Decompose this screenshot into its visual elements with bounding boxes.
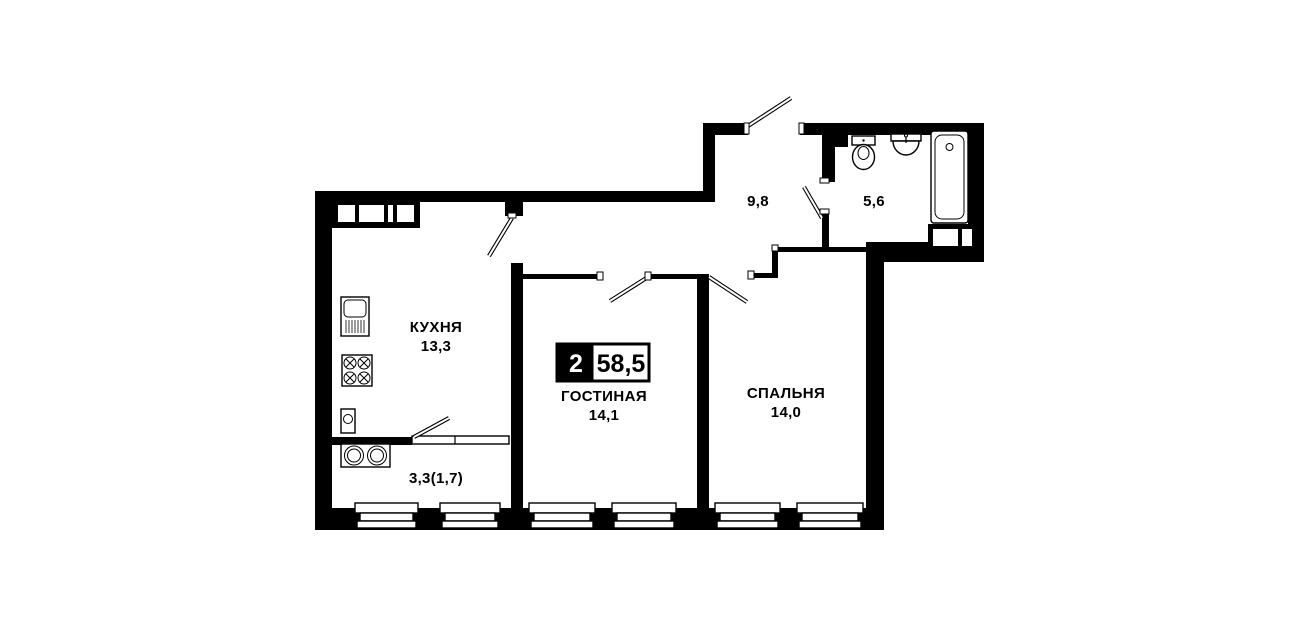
room-label-bedroom: СПАЛЬНЯ xyxy=(747,385,825,402)
room-area-kitchen: 13,3 xyxy=(421,338,451,355)
room-area-bathroom: 5,6 xyxy=(863,193,885,210)
balcony-door xyxy=(414,418,449,437)
floorplan-svg: 2 58,5 КУХНЯ 13,3 ГОСТИНАЯ 14,1 СПАЛЬНЯ … xyxy=(0,0,1301,630)
badge-rooms-count: 2 xyxy=(569,350,583,378)
kitchen-door xyxy=(489,218,512,256)
badge-total-area: 58,5 xyxy=(597,350,646,378)
bathtub-icon xyxy=(931,131,968,223)
bedroom-door xyxy=(709,277,747,302)
room-label-kitchen: КУХНЯ xyxy=(410,319,462,336)
window xyxy=(612,503,676,528)
window xyxy=(529,503,595,528)
window xyxy=(355,503,418,528)
room-area-bedroom: 14,0 xyxy=(771,404,801,421)
area-badge: 2 58,5 xyxy=(557,344,649,381)
boiler-icon xyxy=(341,409,355,433)
bathroom-sink-icon xyxy=(891,134,921,155)
room-area-living: 14,1 xyxy=(589,407,619,424)
window xyxy=(440,503,500,528)
living-door xyxy=(610,277,648,301)
window xyxy=(715,503,780,528)
stove-icon xyxy=(342,355,372,386)
entry-door xyxy=(748,98,791,126)
room-label-living: ГОСТИНАЯ xyxy=(561,388,647,405)
floorplan-canvas: 2 58,5 КУХНЯ 13,3 ГОСТИНАЯ 14,1 СПАЛЬНЯ … xyxy=(0,0,1301,630)
room-area-hallway: 9,8 xyxy=(747,193,769,210)
toilet-icon xyxy=(852,136,875,170)
bathroom-door xyxy=(804,187,822,218)
window xyxy=(797,503,863,528)
wardrobe xyxy=(332,202,420,228)
kitchen-sink-icon xyxy=(341,297,369,336)
balcony-glazing xyxy=(412,436,509,444)
washing-machine-icon xyxy=(341,444,390,467)
room-area-balcony: 3,3(1,7) xyxy=(409,470,463,487)
